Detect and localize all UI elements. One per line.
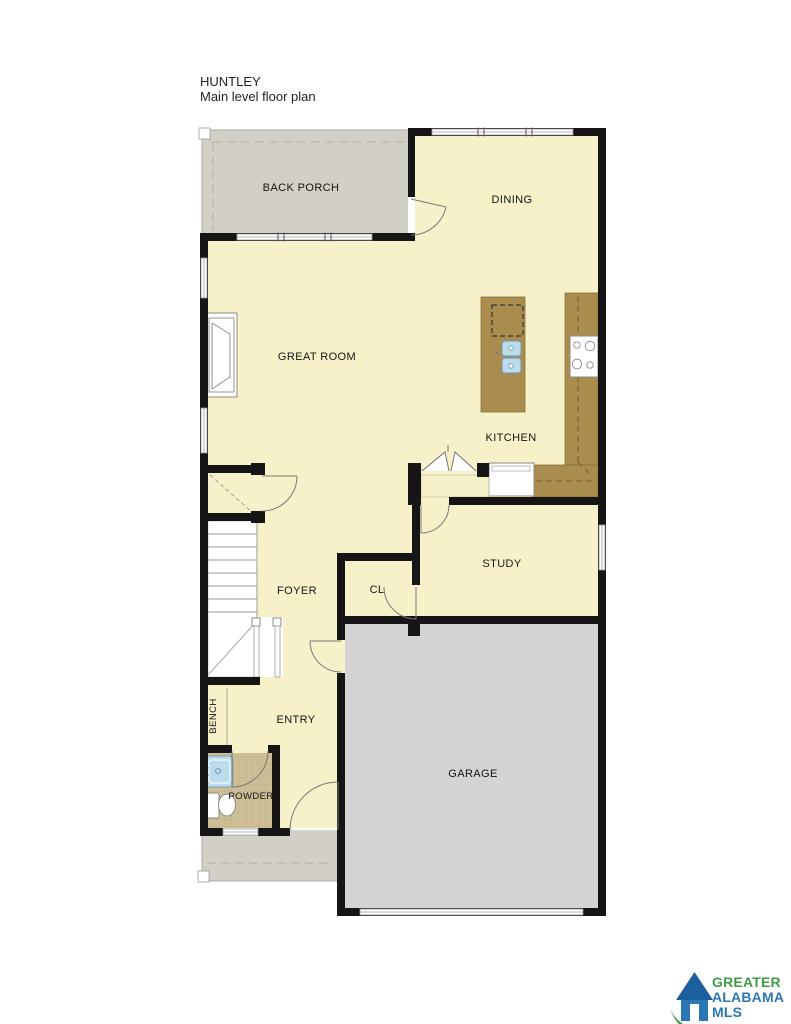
window [432,128,573,137]
newel-post [252,618,260,626]
plan-subtitle: Main level floor plan [200,89,316,104]
logo-line-alabama: ALABAMA [712,989,784,1005]
label-garage: GARAGE [448,768,497,780]
floor-plan-page: HUNTLEY Main level floor plan [0,0,791,1024]
label-closet: CL [370,584,385,596]
label-great-room: GREAT ROOM [278,351,356,363]
wall [251,463,265,475]
window [237,233,372,242]
wall [449,497,606,505]
wall [337,624,345,640]
wall [200,828,223,836]
wall [200,513,255,521]
window [201,408,207,453]
refrigerator [489,463,534,496]
powder-sink [205,756,233,787]
label-study: STUDY [482,558,522,570]
plan-title: HUNTLEY Main level floor plan [200,74,316,104]
label-back-porch: BACK PORCH [263,182,340,194]
wall [337,616,606,624]
front-porch-floor [202,830,337,881]
logo-line-mls: MLS [712,1004,742,1020]
wall [408,128,415,197]
porch-column [198,871,209,882]
label-bench: BENCH [208,698,219,733]
stair-rail [275,626,280,677]
porch-column [199,128,210,139]
window [599,525,605,570]
wall [200,235,208,830]
mls-logo: GREATER ALABAMA MLS [670,972,784,1024]
label-dining: DINING [492,194,533,206]
label-entry: ENTRY [276,714,315,726]
window [201,258,207,298]
label-foyer: FOYER [277,585,317,597]
wall [338,828,345,836]
garage-floor [345,624,598,908]
kitchen-island [481,297,525,412]
wall [337,553,420,561]
wall [251,511,265,523]
floor-plan-drawing: HUNTLEY Main level floor plan [0,0,791,1024]
label-powder: POWDER [228,791,273,802]
wall [200,677,260,685]
wall [200,745,232,753]
logo-line-greater: GREATER [712,974,781,990]
garage-door [360,909,583,915]
plan-name: HUNTLEY [200,74,261,89]
newel-post [273,618,281,626]
wall [200,465,255,473]
stove [570,336,598,377]
wall [408,624,420,636]
fireplace [206,313,237,397]
wall [337,553,345,624]
label-kitchen: KITCHEN [485,432,536,444]
wall [408,463,421,505]
wall [412,505,420,585]
wall [258,828,290,836]
house-icon [670,972,715,1024]
window [223,829,258,835]
wall [477,463,489,477]
wall [598,128,606,916]
stair-rail [254,626,259,677]
